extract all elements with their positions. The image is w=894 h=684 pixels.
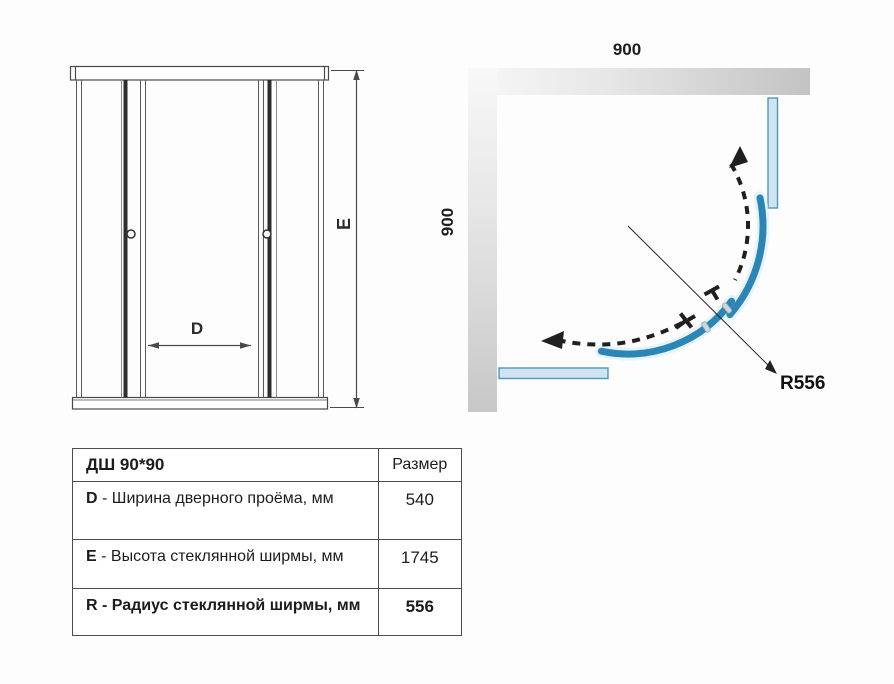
row-key: E bbox=[86, 548, 97, 565]
front-left-door-knob bbox=[127, 230, 135, 238]
row-label: - Радиус стеклянной ширмы, мм bbox=[98, 597, 361, 614]
door-width-label: D bbox=[184, 320, 210, 337]
row-key: R bbox=[86, 597, 98, 614]
front-frame-profiles bbox=[77, 80, 324, 398]
row-value: 1745 bbox=[379, 540, 461, 588]
spec-table: ДШ 90*90 Размер D - Ширина дверного проё… bbox=[72, 448, 462, 636]
door-width-dimension-arrow bbox=[148, 342, 251, 349]
plan-bottom-glass-panel bbox=[499, 368, 608, 379]
top-view-diagram bbox=[499, 98, 778, 379]
upper-door-edge-mark bbox=[705, 287, 720, 300]
row-label: - Ширина дверного проёма, мм bbox=[98, 490, 334, 507]
size-column-header: Размер bbox=[379, 449, 461, 481]
spec-table-header-row: ДШ 90*90 Размер bbox=[73, 449, 461, 481]
plan-right-glass-panel bbox=[768, 98, 778, 208]
row-description: R - Радиус стеклянной ширмы, мм bbox=[73, 589, 379, 635]
front-right-door-rail bbox=[268, 80, 272, 398]
dashed-arc-upper bbox=[731, 164, 748, 280]
model-name: ДШ 90*90 bbox=[73, 449, 379, 481]
plan-depth-dimension-label: 900 bbox=[439, 189, 459, 255]
up-arrowhead-icon bbox=[729, 146, 748, 168]
shower-enclosure-spec-sheet: 900 900 R556 D E ДШ 90*90 Размер D - Шир… bbox=[0, 0, 894, 684]
front-view-diagram bbox=[71, 67, 365, 410]
row-key: D bbox=[86, 490, 98, 507]
table-row-door-width: D - Ширина дверного проёма, мм 540 bbox=[73, 481, 461, 539]
table-row-glass-radius: R - Радиус стеклянной ширмы, мм 556 bbox=[73, 588, 461, 635]
plan-width-dimension-label: 900 bbox=[594, 41, 660, 58]
front-bottom-bar bbox=[73, 398, 328, 410]
table-row-glass-height: E - Высота стеклянной ширмы, мм 1745 bbox=[73, 539, 461, 588]
row-description: E - Высота стеклянной ширмы, мм bbox=[73, 540, 379, 588]
front-right-door-knob bbox=[263, 230, 271, 238]
radius-arrowhead-icon bbox=[765, 360, 777, 374]
front-top-bar bbox=[71, 67, 329, 81]
height-label: E bbox=[335, 212, 355, 236]
height-dimension-arrow bbox=[330, 70, 364, 409]
row-value: 556 bbox=[379, 589, 461, 635]
row-value: 540 bbox=[379, 482, 461, 539]
radius-dimension-label: R556 bbox=[780, 374, 850, 393]
row-label: - Высота стеклянной ширмы, мм bbox=[97, 548, 344, 565]
row-description: D - Ширина дверного проёма, мм bbox=[73, 482, 379, 539]
front-left-door-rail bbox=[124, 80, 128, 398]
left-arrowhead-icon bbox=[541, 331, 564, 349]
